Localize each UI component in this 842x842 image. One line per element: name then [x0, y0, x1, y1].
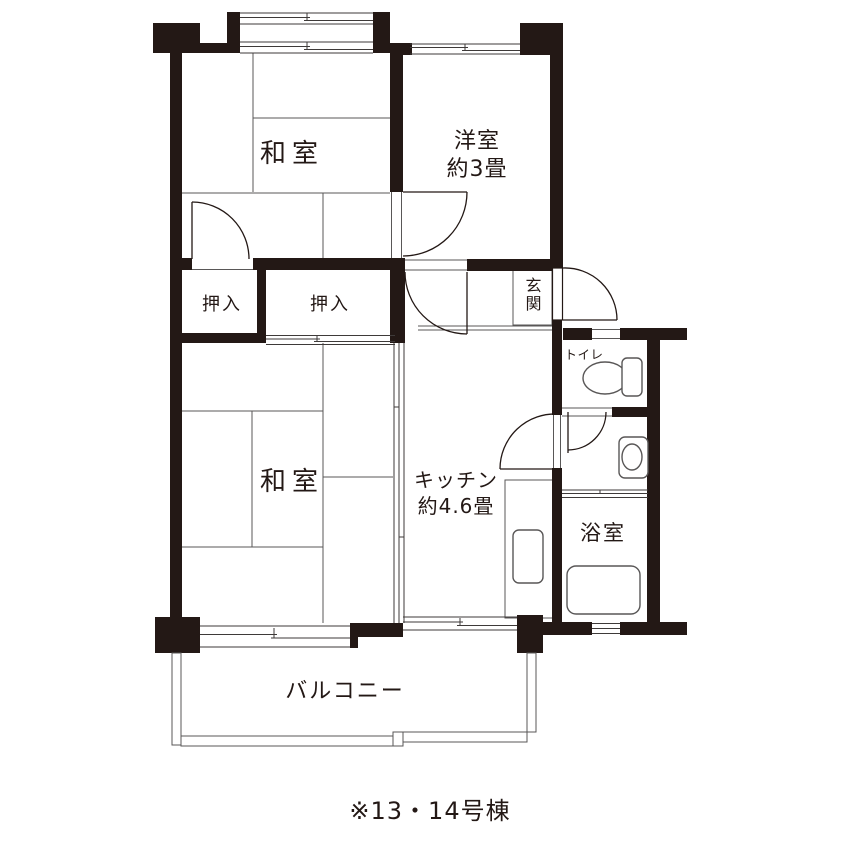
yoshitsu-size: 約3畳	[447, 157, 508, 182]
toilet-icon	[583, 358, 642, 396]
kitchen-sink-icon	[513, 530, 543, 583]
entrance-door	[553, 268, 618, 320]
oshiire-right-label: 押入	[310, 294, 350, 315]
kitchen-size: 約4.6畳	[418, 494, 495, 518]
genkan-label: 玄関	[523, 277, 542, 313]
bay-window-outer	[240, 13, 373, 24]
yoshitsu-door	[403, 192, 467, 256]
building-caption: ※13・14号棟	[349, 797, 510, 825]
balcony-label: バルコニー	[285, 679, 405, 704]
walls	[153, 12, 687, 653]
kitchen-label: キッチン	[414, 468, 498, 492]
washitsu-upper-label: 和室	[260, 139, 324, 169]
washitsu-lower-label: 和室	[260, 467, 324, 497]
washroom-door	[568, 412, 606, 453]
yoshitsu-label: 洋室	[454, 129, 500, 154]
bay-window-inner	[240, 42, 373, 53]
hall-door	[405, 272, 467, 334]
bathtub-icon	[567, 566, 640, 614]
bath-label: 浴室	[580, 521, 626, 545]
floor-plan-page: 和室 洋室 約3畳 押入 押入 玄関 トイレ 和室 キッチン 約4.6畳 浴室 …	[0, 0, 842, 842]
washitsu-balcony-window	[200, 626, 350, 647]
kitchen-washitsu-sliding-door	[394, 343, 404, 623]
washbasin-icon	[619, 437, 648, 478]
kitchen-washroom-door	[500, 414, 558, 469]
bathroom-window	[592, 624, 620, 634]
kitchen-balcony-window	[403, 617, 517, 630]
oshiire-sliding-door	[266, 336, 395, 345]
toilet-label: トイレ	[564, 347, 603, 362]
yoshitsu-window	[410, 44, 520, 54]
bath-sliding-door	[562, 490, 648, 498]
kitchen-counter	[505, 480, 552, 618]
oshiire-left-label: 押入	[202, 294, 242, 315]
floor-plan: 和室 洋室 約3畳 押入 押入 玄関 トイレ 和室 キッチン 約4.6畳 浴室 …	[0, 0, 842, 842]
oshiire-hinged-door	[192, 202, 249, 259]
